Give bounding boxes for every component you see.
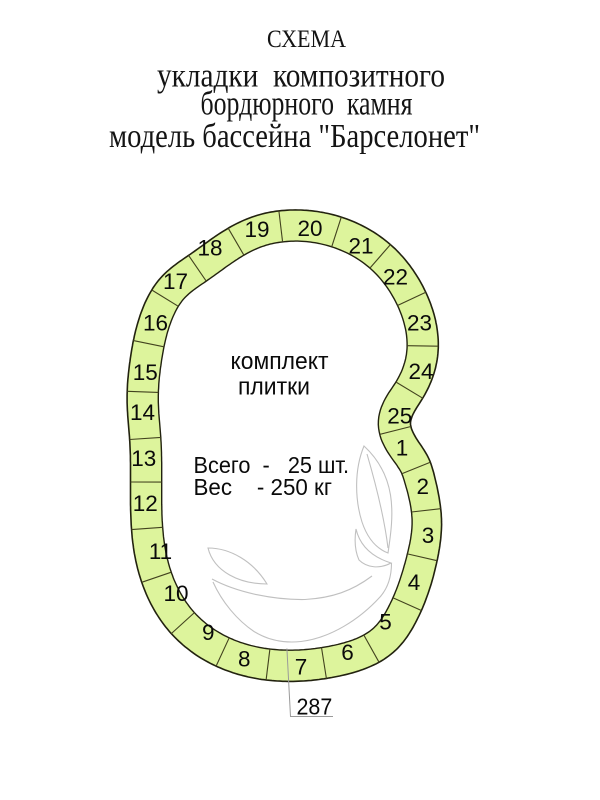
- svg-text:3: 3: [422, 523, 435, 548]
- svg-text:комплект: комплект: [231, 348, 329, 375]
- svg-text:11: 11: [149, 539, 172, 564]
- svg-text:14: 14: [130, 400, 155, 425]
- svg-text:287: 287: [297, 694, 333, 720]
- svg-text:16: 16: [143, 310, 168, 335]
- svg-text:6: 6: [341, 640, 354, 665]
- svg-text:12: 12: [133, 491, 158, 516]
- svg-text:4: 4: [408, 570, 421, 595]
- svg-text:Вес - 250 кг: Вес - 250 кг: [194, 474, 333, 500]
- svg-text:8: 8: [238, 646, 251, 671]
- svg-text:17: 17: [163, 269, 188, 294]
- svg-text:22: 22: [383, 264, 408, 289]
- svg-text:10: 10: [163, 581, 188, 606]
- svg-text:СХЕМА: СХЕМА: [267, 26, 346, 53]
- svg-text:24: 24: [408, 359, 433, 384]
- svg-text:1: 1: [396, 435, 409, 460]
- svg-text:7: 7: [295, 654, 308, 679]
- svg-text:плитки: плитки: [238, 374, 310, 401]
- svg-text:21: 21: [348, 233, 373, 258]
- svg-text:бордюрного камня: бордюрного камня: [201, 86, 413, 123]
- svg-text:модель бассейна "Барселонет": модель бассейна "Барселонет": [109, 118, 480, 155]
- svg-text:18: 18: [197, 235, 222, 260]
- svg-text:9: 9: [202, 620, 215, 645]
- svg-text:2: 2: [417, 474, 430, 499]
- svg-text:20: 20: [297, 216, 322, 241]
- svg-text:19: 19: [244, 217, 269, 242]
- svg-text:5: 5: [379, 609, 392, 634]
- svg-text:15: 15: [133, 360, 158, 385]
- svg-text:25: 25: [387, 403, 412, 428]
- svg-text:13: 13: [131, 446, 156, 471]
- svg-text:23: 23: [407, 310, 432, 335]
